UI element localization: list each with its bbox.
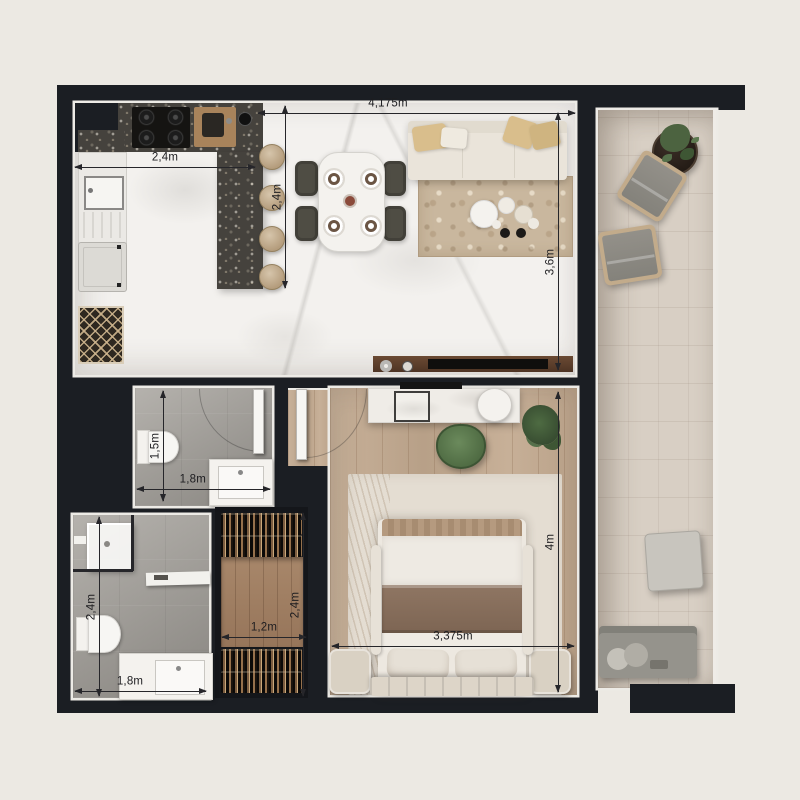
dim-closet-width-label: 1,2m bbox=[251, 623, 277, 635]
coffee-cup bbox=[528, 218, 539, 229]
desk-stool bbox=[477, 388, 512, 422]
dim-kitchen-depth: 2,4m bbox=[285, 106, 286, 288]
washer-hinge-top bbox=[117, 245, 121, 249]
cabinet-faucet bbox=[88, 188, 93, 193]
sofa-pillow bbox=[440, 127, 468, 149]
toilet-bowl bbox=[88, 615, 121, 653]
tv-screen bbox=[428, 359, 548, 369]
balcony-bottom-wall bbox=[630, 684, 735, 713]
kitchen-sink bbox=[202, 113, 224, 137]
dim-kitchen-width: 2,4m bbox=[75, 167, 255, 168]
dining-chair bbox=[383, 161, 406, 196]
dim-closet-width: 1,2m bbox=[222, 637, 306, 638]
dim-bathroom-top-depth: 1,5m bbox=[163, 391, 164, 501]
headboard bbox=[370, 677, 534, 696]
place-setting bbox=[323, 168, 345, 190]
shelf-towel bbox=[154, 575, 168, 580]
kitchen-faucet bbox=[226, 118, 232, 124]
bed-foot-throw bbox=[382, 519, 522, 536]
coffee-tray-plate bbox=[498, 197, 515, 214]
shower-drain bbox=[104, 541, 110, 547]
bedroom-plant bbox=[522, 405, 560, 445]
dim-bedroom-depth-label: 4m bbox=[545, 534, 557, 550]
nightstand bbox=[529, 649, 571, 694]
dim-living-width-label: 4,175m bbox=[368, 99, 408, 111]
shower-panel bbox=[87, 523, 133, 571]
vanity-faucet bbox=[176, 666, 181, 671]
bed-blanket bbox=[382, 585, 522, 633]
dining-chair bbox=[295, 161, 318, 196]
dish-rack bbox=[83, 212, 122, 238]
dim-closet-depth: 2,4m bbox=[303, 513, 304, 696]
floorplan-canvas: 2,4m 2,4m 4,175m 3,6m 1,5m 1,8m 2,4m 1,8… bbox=[0, 0, 800, 800]
green-chair bbox=[436, 424, 486, 469]
dim-living-width: 4,175m bbox=[258, 113, 575, 114]
hanging-clothes bbox=[221, 535, 302, 557]
place-setting bbox=[360, 168, 382, 190]
vanity-sink bbox=[155, 660, 205, 695]
dim-bathroom-bottom-depth-label: 2,4m bbox=[86, 593, 98, 619]
lounge-tray bbox=[650, 660, 668, 669]
vanity-faucet bbox=[238, 470, 243, 475]
dim-bathroom-bottom-width-label: 1,8m bbox=[117, 677, 143, 689]
console-tray bbox=[394, 391, 430, 422]
balcony-armchair bbox=[597, 224, 663, 286]
dim-kitchen-width-label: 2,4m bbox=[152, 153, 178, 165]
lounge-pillow bbox=[624, 643, 648, 667]
dining-chair bbox=[295, 206, 318, 241]
coffee-dark-plate bbox=[500, 228, 510, 238]
table-centerpiece bbox=[345, 196, 355, 206]
dim-kitchen-depth-label: 2,4m bbox=[272, 184, 284, 210]
bed-duvet bbox=[382, 536, 522, 585]
kitchen-peninsula bbox=[217, 152, 263, 289]
bedroom-tv bbox=[400, 382, 462, 389]
bedroom-door bbox=[296, 389, 307, 460]
dim-bathroom-top-width-label: 1,8m bbox=[180, 475, 206, 487]
dim-bathroom-top-depth-label: 1,5m bbox=[150, 433, 162, 459]
washer-hinge-bottom bbox=[117, 283, 121, 287]
dining-chair bbox=[383, 206, 406, 241]
dim-bedroom-width-label: 3,375m bbox=[433, 632, 473, 644]
shower-head bbox=[74, 536, 86, 544]
kitchen-left-counter bbox=[78, 130, 125, 152]
counter-pot bbox=[238, 112, 252, 126]
dim-living-depth-label: 3,6m bbox=[545, 249, 557, 275]
table-fan bbox=[380, 360, 392, 372]
shower-glass-front bbox=[73, 569, 133, 572]
top-wall-band bbox=[598, 85, 745, 110]
dim-bathroom-top-width: 1,8m bbox=[137, 489, 270, 490]
coffee-dark-plate bbox=[516, 228, 526, 238]
place-setting bbox=[360, 215, 382, 237]
dim-bedroom-depth: 4m bbox=[558, 392, 559, 692]
bed-side-rail bbox=[523, 545, 533, 655]
place-setting bbox=[323, 215, 345, 237]
bar-stool bbox=[259, 226, 285, 252]
washing-machine-door bbox=[83, 247, 122, 287]
cabinet-sink bbox=[84, 176, 124, 210]
coffee-cup bbox=[492, 220, 501, 229]
hanging-clothes bbox=[221, 513, 302, 535]
hanging-clothes bbox=[221, 649, 302, 671]
kitchen-doormat bbox=[78, 306, 124, 364]
dim-bathroom-bottom-depth: 2,4m bbox=[99, 517, 100, 696]
dim-living-depth: 3,6m bbox=[558, 113, 559, 370]
bathroom-top-door bbox=[253, 389, 264, 454]
balcony-stool bbox=[644, 530, 704, 592]
shower-glass-side bbox=[131, 515, 134, 571]
bed-side-rail bbox=[371, 545, 381, 655]
cooktop bbox=[132, 107, 190, 148]
dim-bathroom-bottom-width: 1,8m bbox=[75, 691, 206, 692]
hanging-clothes bbox=[221, 671, 302, 693]
bar-stool bbox=[259, 144, 285, 170]
nightstand bbox=[329, 649, 371, 694]
clock bbox=[402, 361, 413, 372]
dim-bedroom-width: 3,375m bbox=[332, 646, 574, 647]
dim-closet-depth-label: 2,4m bbox=[290, 591, 302, 617]
bed-pillow bbox=[386, 648, 449, 680]
bed-pillow bbox=[454, 648, 517, 680]
